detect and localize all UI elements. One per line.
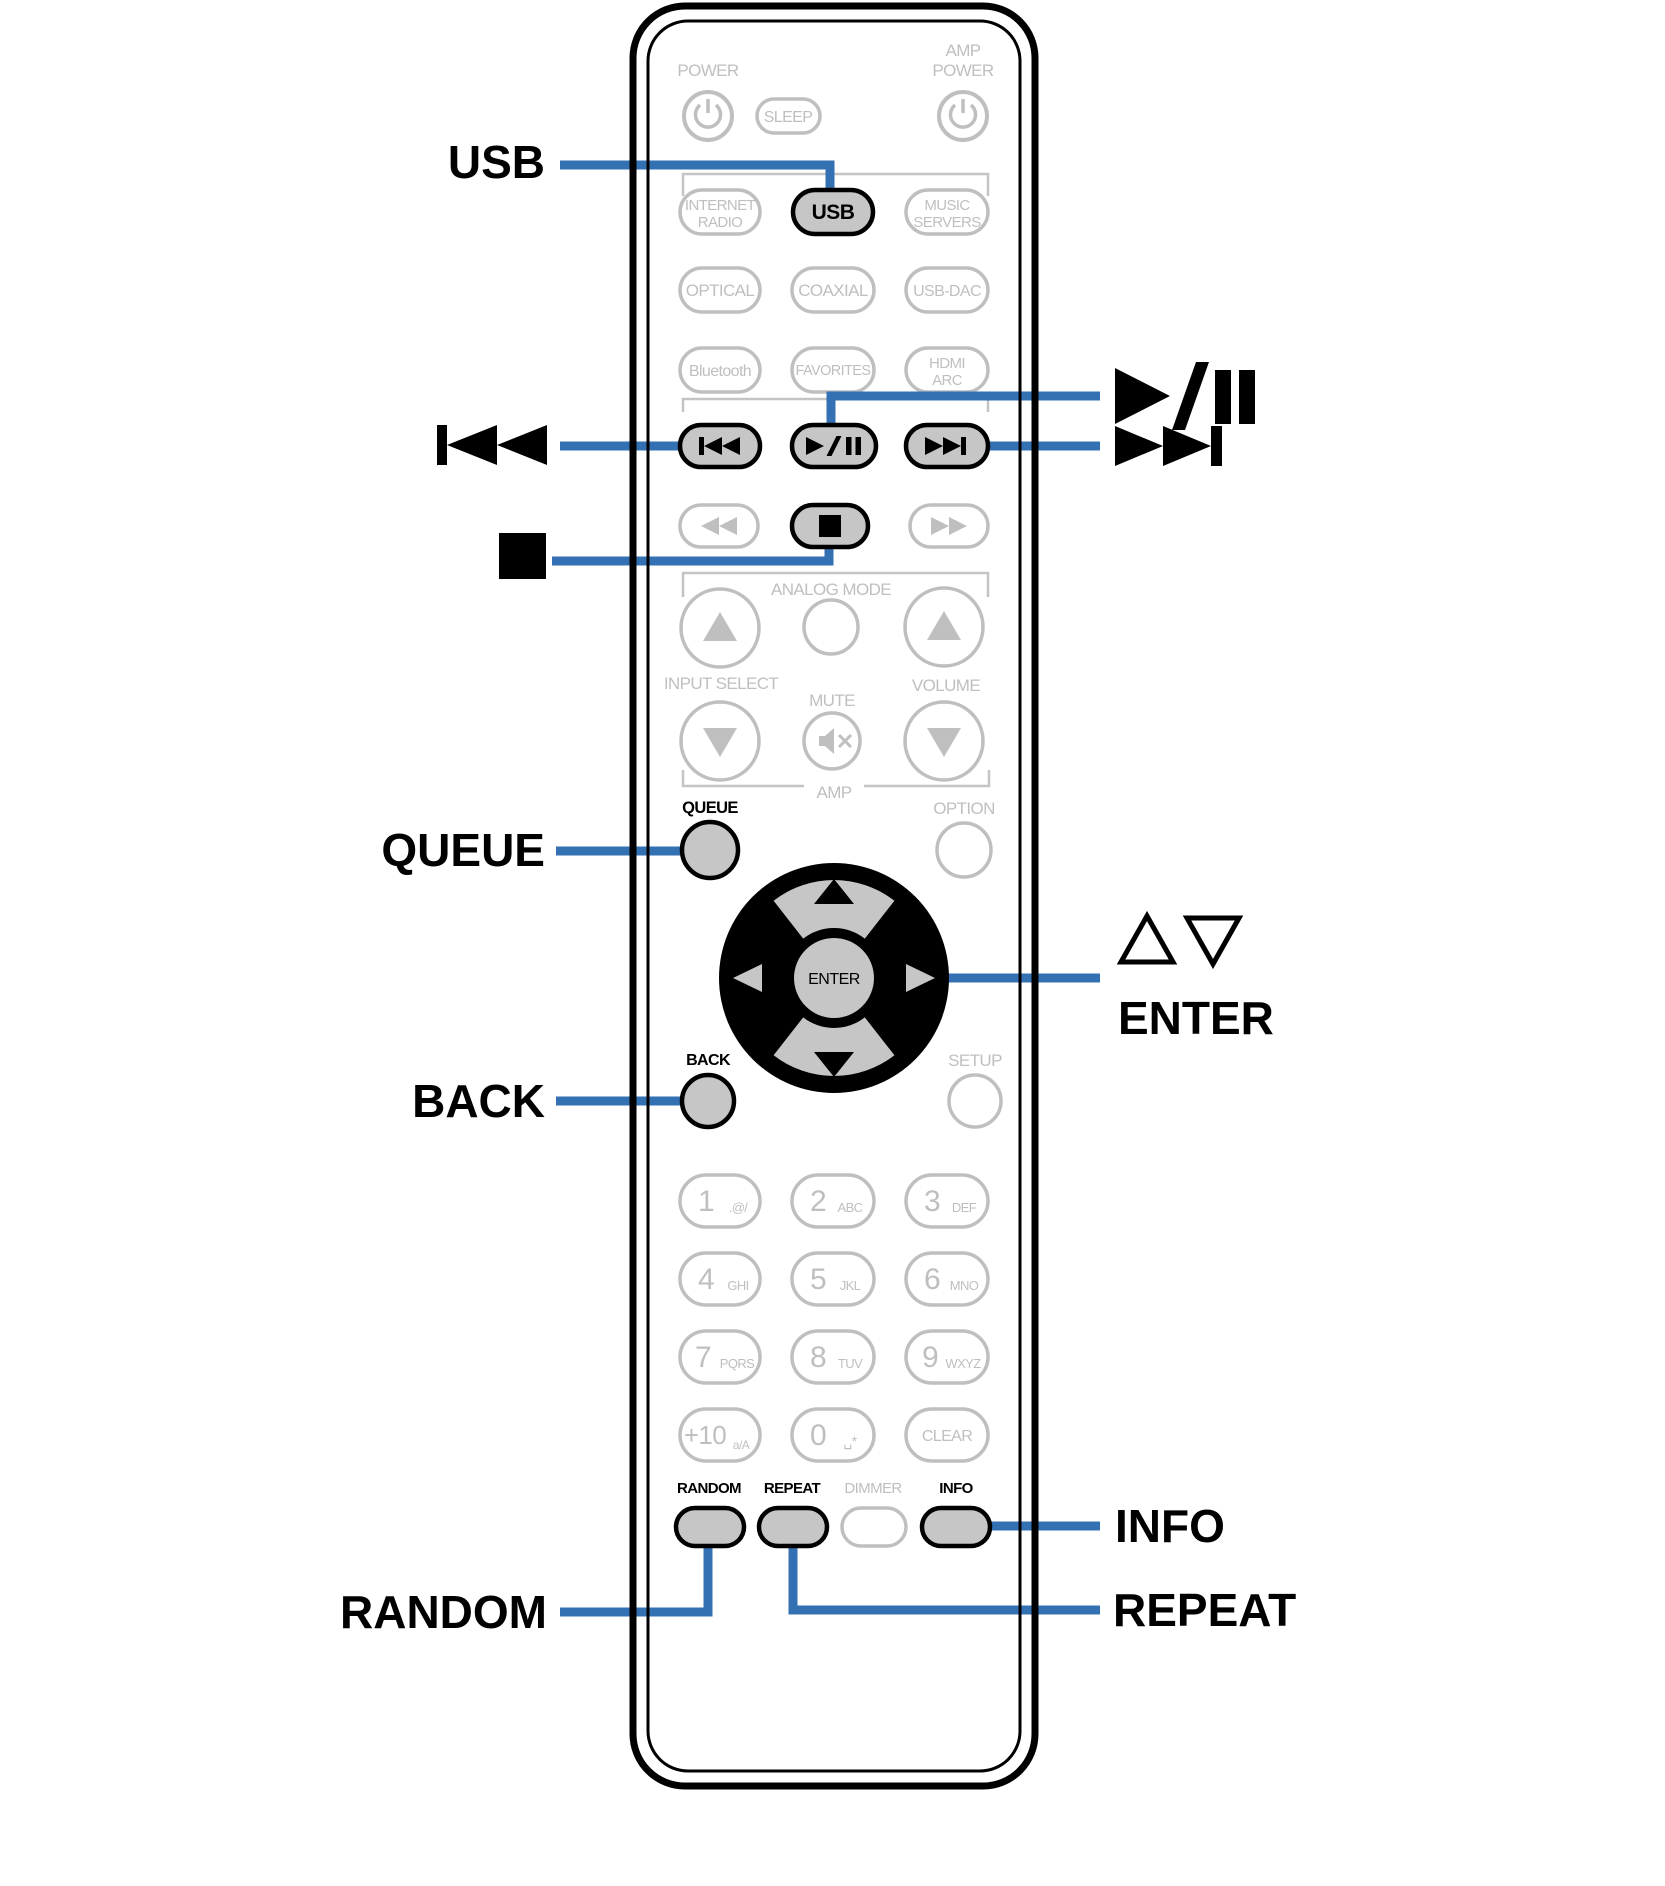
internet-radio-label-1: INTERNET xyxy=(685,197,756,214)
analog-mode-label: ANALOG MODE xyxy=(771,580,891,599)
key-sub: ␣* xyxy=(843,1433,857,1450)
key-digit: 6 xyxy=(924,1263,940,1296)
dimmer-label: DIMMER xyxy=(844,1480,902,1497)
key-sub: DEF xyxy=(952,1200,977,1215)
enter-button-label: ENTER xyxy=(808,971,860,988)
setup-label: SETUP xyxy=(948,1051,1002,1070)
skip-forward-callout-icon xyxy=(1115,426,1222,466)
up-down-cursor-callout-icon xyxy=(1121,916,1239,964)
repeat-button[interactable] xyxy=(759,1508,827,1546)
skip-back-button[interactable] xyxy=(680,425,760,467)
callout-enter: ENTER xyxy=(1118,992,1274,1044)
stop-callout-icon xyxy=(499,533,546,579)
key-digit: 4 xyxy=(698,1263,714,1296)
key-sub: ABC xyxy=(838,1200,863,1215)
bluetooth-label: Bluetooth xyxy=(689,363,751,380)
option-label: OPTION xyxy=(933,799,995,818)
sleep-label: SLEEP xyxy=(764,109,813,126)
amp-power-label-line1: AMP xyxy=(945,41,980,60)
info-button[interactable] xyxy=(922,1508,990,1546)
key-digit: 3 xyxy=(924,1185,940,1218)
back-printed-label: BACK xyxy=(686,1052,731,1069)
callout-queue: QUEUE xyxy=(381,824,545,876)
callout-back: BACK xyxy=(412,1075,545,1127)
key-sub: GHI xyxy=(727,1278,748,1293)
key-digit: 5 xyxy=(810,1263,826,1296)
skip-back-callout-icon xyxy=(437,425,547,465)
dpad: ENTER xyxy=(719,863,949,1093)
info-printed-label: INFO xyxy=(939,1480,973,1497)
key-digit: 2 xyxy=(810,1185,826,1218)
key-digit: 0 xyxy=(810,1419,826,1452)
queue-printed-label: QUEUE xyxy=(682,799,738,817)
key-sub: PQRS xyxy=(720,1356,755,1371)
stop-button[interactable] xyxy=(792,505,868,547)
key-sub: WXYZ xyxy=(945,1356,981,1371)
remote-control-diagram: POWER SLEEP AMP POWER AMP INTERNET RADIO… xyxy=(0,0,1665,1881)
enter-button[interactable]: ENTER xyxy=(794,938,874,1018)
coaxial-label: COAXIAL xyxy=(798,281,868,300)
optical-label: OPTICAL xyxy=(686,281,755,300)
key-sub: .@/ xyxy=(729,1200,749,1215)
key-digit: 7 xyxy=(695,1341,711,1374)
back-button[interactable] xyxy=(682,1075,734,1127)
callout-random: RANDOM xyxy=(340,1586,547,1638)
usb-button[interactable]: USB xyxy=(793,190,873,234)
key-sub: JKL xyxy=(840,1278,861,1293)
hdmi-arc-label-1: HDMI xyxy=(929,355,965,372)
random-button[interactable] xyxy=(676,1508,744,1546)
key-digit: 9 xyxy=(922,1341,938,1374)
volume-label: VOLUME xyxy=(912,676,980,695)
usb-dac-label: USB-DAC xyxy=(913,283,981,300)
callout-info: INFO xyxy=(1115,1500,1225,1552)
queue-button[interactable] xyxy=(682,822,738,878)
music-servers-label-1: MUSIC xyxy=(924,197,970,214)
callout-repeat: REPEAT xyxy=(1113,1584,1296,1636)
play-pause-callout-icon xyxy=(1115,362,1255,430)
favorites-label: FAVORITES xyxy=(796,363,871,379)
usb-button-label: USB xyxy=(812,201,855,224)
mute-label: MUTE xyxy=(809,691,855,710)
key-digit: 8 xyxy=(810,1341,826,1374)
repeat-printed-label: REPEAT xyxy=(764,1480,821,1497)
hdmi-arc-label-2: ARC xyxy=(932,372,963,389)
clear-label: CLEAR xyxy=(922,1428,972,1445)
play-pause-button[interactable] xyxy=(792,425,876,467)
power-label: POWER xyxy=(677,61,739,80)
random-printed-label: RANDOM xyxy=(677,1480,741,1497)
amp-power-label-line2: POWER xyxy=(932,61,994,80)
key-digit: 1 xyxy=(698,1185,714,1218)
key-digit: +10 xyxy=(684,1420,726,1450)
amp-bracket-label: AMP xyxy=(816,783,851,802)
stop-icon xyxy=(819,515,841,537)
callout-usb: USB xyxy=(448,136,545,188)
key-sub: MNO xyxy=(950,1278,979,1293)
key-sub: a/A xyxy=(733,1438,750,1452)
key-sub: TUV xyxy=(838,1356,863,1371)
music-servers-label-2: SERVERS xyxy=(913,214,981,231)
internet-radio-label-2: RADIO xyxy=(698,214,743,231)
skip-forward-button[interactable] xyxy=(906,425,988,467)
input-select-label: INPUT SELECT xyxy=(664,674,779,693)
